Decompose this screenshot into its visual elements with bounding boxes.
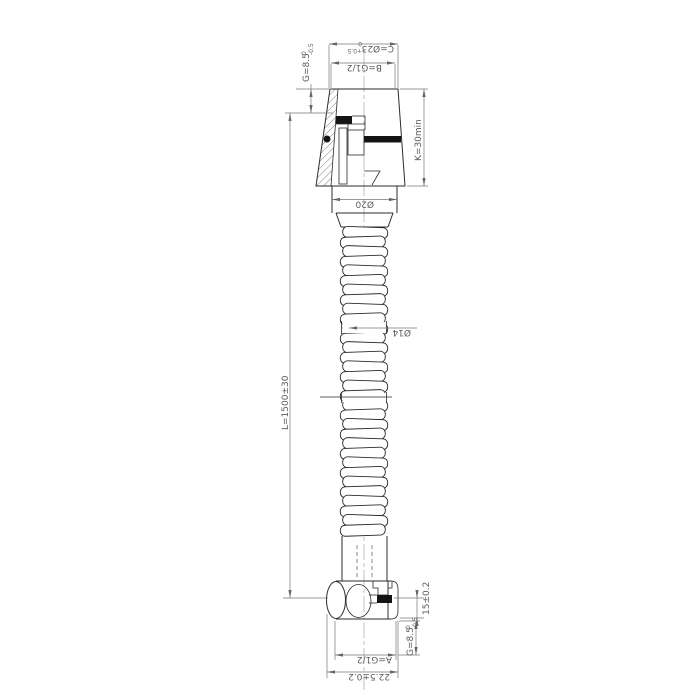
hose-ridge (340, 524, 385, 537)
dim-g-top-label: G=8.5 (302, 53, 312, 82)
dim-b-label: B=G1/2 (347, 62, 382, 72)
top-seal-right (364, 136, 401, 143)
dim-225-label: 22.5±0.2 (348, 671, 390, 681)
dim-length-label: L=1500±30 (281, 375, 291, 430)
top-cartridge (348, 130, 364, 155)
dim-a-label: A=G1/2 (357, 654, 392, 664)
technical-drawing-canvas: C=Ø23 +0.5 0 B=G1/2 G=8.5 0 -0.5 (0, 0, 700, 700)
dim-g-top-tol-lower: -0.5 (308, 43, 315, 55)
dim-g-bottom-tol-lower: -0.5 (412, 617, 419, 629)
hose-break-band-1 (343, 322, 387, 333)
dim-phi20-label: Ø20 (355, 199, 374, 210)
dim-225: 22.5±0.2 (327, 614, 398, 681)
dim-15-label: 15±0.2 (422, 582, 432, 615)
o-ring-dot (324, 136, 331, 143)
hose-corrugation (340, 226, 388, 536)
top-stem (339, 128, 347, 184)
dim-phi14-label: Ø14 (392, 327, 411, 338)
dim-g-top: G=8.5 0 -0.5 (285, 43, 333, 113)
bottom-step-detail (373, 581, 392, 595)
bottom-neck (342, 536, 387, 581)
bottom-connector (327, 581, 399, 619)
bottom-ball (346, 585, 371, 618)
top-connector (316, 89, 405, 186)
top-seal-left (336, 116, 352, 124)
dim-b: B=G1/2 (331, 61, 395, 88)
dim-phi20: Ø20 (332, 198, 397, 210)
bottom-end-oval (327, 582, 346, 619)
dim-k-label: K=30min (414, 119, 424, 161)
dim-c-label: C=Ø23 (362, 43, 394, 54)
dim-a: A=G1/2 (335, 621, 396, 664)
dim-g-bottom-tol-upper: 0 (405, 625, 412, 629)
dim-g-bottom-label: G=8.5 (406, 627, 416, 656)
bottom-seal (377, 595, 392, 603)
dim-c-tol-upper: +0.5 (347, 47, 362, 54)
dim-c-tol-lower: 0 (358, 40, 362, 47)
hose-break-band-2 (343, 393, 387, 402)
dim-g-bottom: G=8.5 0 -0.5 (398, 617, 420, 656)
drawing-page: C=Ø23 +0.5 0 B=G1/2 G=8.5 0 -0.5 (0, 0, 700, 700)
top-inner-edge (364, 171, 380, 185)
dim-g-top-tol-upper: 0 (301, 51, 308, 55)
